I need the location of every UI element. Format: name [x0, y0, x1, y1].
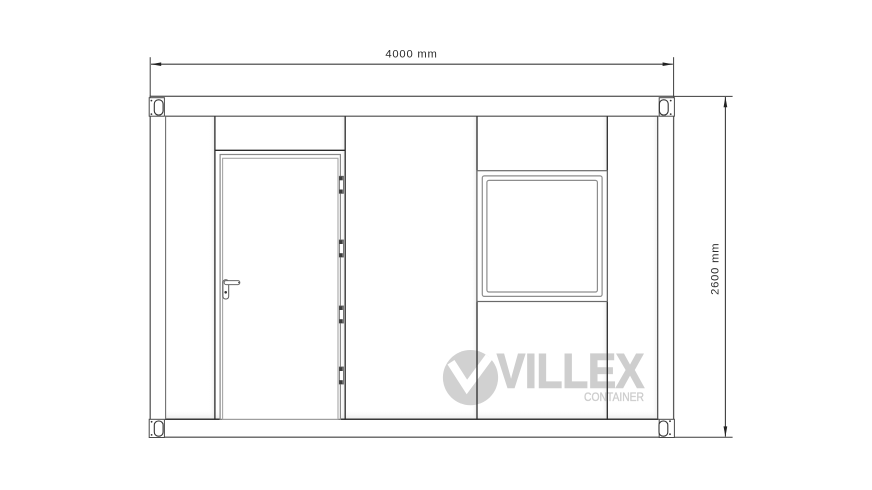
svg-text:2600 mm: 2600 mm: [710, 243, 722, 295]
svg-text:CONTAINER: CONTAINER: [584, 390, 644, 404]
svg-text:4000 mm: 4000 mm: [385, 49, 437, 61]
